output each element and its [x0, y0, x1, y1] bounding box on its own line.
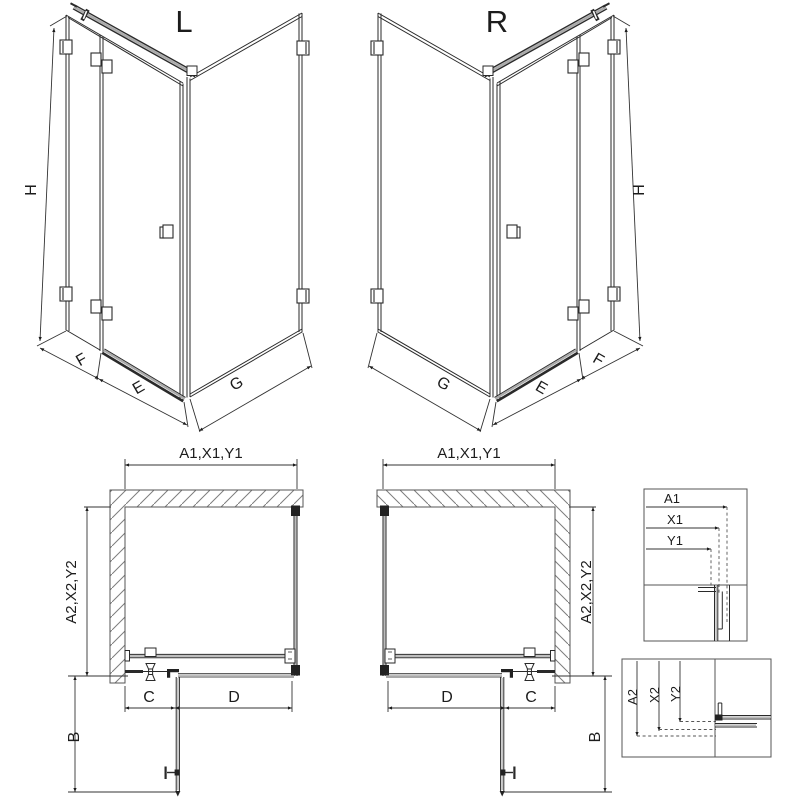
detail-box-depth — [622, 659, 771, 757]
detail-width-label-y1: Y1 — [667, 533, 683, 548]
plan-view-left — [68, 459, 303, 797]
technical-drawing-page: L R H F E G H F E G A1,X1,Y1 A2,X2,Y2 C … — [0, 0, 800, 800]
detail-depth-label-x2: X2 — [647, 687, 662, 703]
plan-width-label-left: A1,X1,Y1 — [179, 445, 242, 462]
plan-width-label-right: A1,X1,Y1 — [437, 445, 500, 462]
detail-box-depth-frame — [622, 659, 771, 757]
iso-view-left — [37, 3, 312, 432]
detail-box-width — [644, 489, 747, 641]
detail-profile-section — [715, 703, 771, 727]
dim-label-side-left: G — [227, 374, 246, 395]
detail-dashed-refs — [711, 507, 727, 622]
plan-fixed-label-right: D — [441, 689, 453, 706]
detail-depth-label-y2: Y2 — [668, 686, 683, 702]
detail-width-label-x1: X1 — [667, 512, 683, 527]
dim-label-door-right: E — [532, 378, 550, 398]
detail-width-label-a1: A1 — [664, 491, 680, 506]
plan-swing-label-left: B — [66, 732, 83, 743]
dim-label-height-right: H — [631, 184, 648, 196]
detail-profile-section — [698, 585, 730, 641]
detail-box-width-frame — [644, 489, 747, 641]
plan-swing-label-right: B — [587, 732, 604, 743]
dim-label-height-left: H — [23, 184, 40, 196]
plan-view-right — [377, 459, 612, 797]
shower-enclosure-diagram: L R H F E G H F E G A1,X1,Y1 A2,X2,Y2 C … — [0, 0, 800, 800]
detail-depth-label-a2: A2 — [625, 689, 640, 705]
variant-label-left: L — [175, 4, 192, 39]
variant-label-right: R — [486, 4, 508, 39]
plan-door-label-left: C — [143, 689, 155, 706]
plan-depth-label-right: A2,X2,Y2 — [578, 560, 595, 623]
dim-label-side-right: G — [434, 374, 453, 395]
plan-door-label-right: C — [525, 689, 537, 706]
plan-depth-label-left: A2,X2,Y2 — [63, 560, 80, 623]
detail-dashed-refs — [637, 722, 716, 737]
plan-fixed-label-left: D — [228, 689, 240, 706]
iso-view-right — [368, 3, 643, 432]
dim-label-door-left: E — [130, 378, 148, 398]
